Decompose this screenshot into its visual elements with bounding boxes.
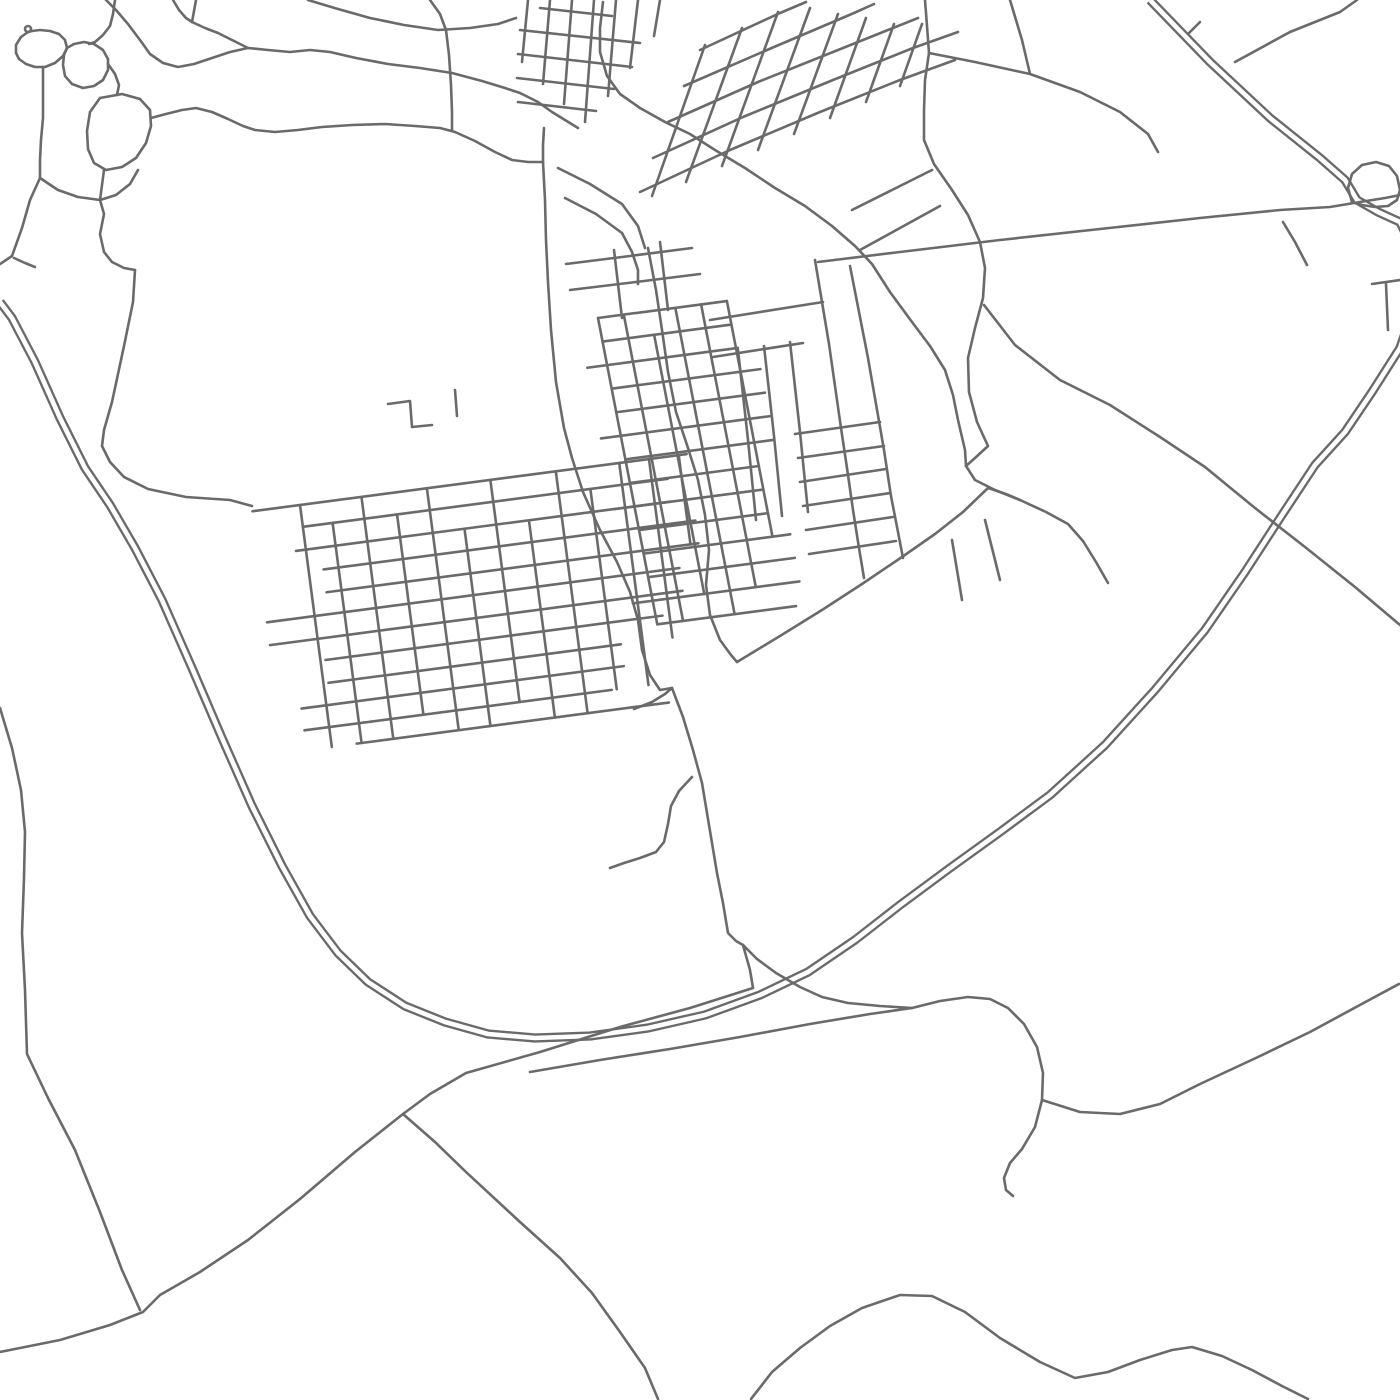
center-grid-row-0 bbox=[598, 301, 727, 318]
big-west-grid-col-3 bbox=[397, 514, 423, 714]
ladder-rung-5 bbox=[518, 102, 596, 111]
ribbon-street-1 bbox=[558, 168, 645, 248]
interchange-teardrop bbox=[912, 997, 1043, 1196]
center-grid-col-5 bbox=[727, 301, 773, 537]
west-east-wavy-road bbox=[106, 0, 578, 128]
c-stub-2 bbox=[985, 520, 1000, 580]
center-grid-row-12 bbox=[633, 581, 800, 603]
center-grid-row-13 bbox=[657, 606, 796, 624]
right-edge-stub-2 bbox=[1386, 284, 1388, 330]
center-grid-row-1 bbox=[603, 325, 732, 342]
left-rural-road bbox=[0, 708, 140, 1310]
loop2-loop3-link bbox=[108, 64, 119, 95]
v-fork-stem bbox=[192, 22, 248, 48]
big-west-grid-col-2 bbox=[361, 497, 393, 739]
ne-collector bbox=[929, 53, 1158, 152]
mid-row-2 bbox=[570, 274, 700, 290]
v-fork-east bbox=[192, 0, 196, 22]
big-west-grid-col-7 bbox=[529, 520, 555, 717]
c-avenue-2 bbox=[850, 266, 903, 558]
cluster-sw-stub bbox=[14, 258, 35, 267]
ladder-rung-3 bbox=[518, 54, 632, 67]
big-west-grid-row-9 bbox=[302, 666, 624, 708]
cul-de-sac-knob bbox=[25, 26, 31, 32]
big-west-grid-col-5 bbox=[464, 529, 490, 726]
street-grid-layer bbox=[252, 301, 799, 747]
ladder-rail-3 bbox=[564, 0, 572, 104]
ne-collector-north bbox=[925, 0, 929, 53]
c-rung-5 bbox=[806, 517, 893, 530]
map-canvas bbox=[0, 0, 1400, 1400]
big-west-grid-col-0 bbox=[300, 505, 332, 747]
ladder-rail-7 bbox=[654, 0, 660, 36]
north-vertical-road bbox=[430, 0, 452, 130]
v-junction-southeast bbox=[403, 1114, 658, 1399]
nw-top-road bbox=[308, 0, 516, 30]
ne-grid-se-row-2 bbox=[860, 206, 940, 250]
mid-row-1 bbox=[566, 248, 692, 264]
east-wiggle-road bbox=[924, 53, 1108, 583]
highway-core-layer bbox=[0, 0, 1400, 1038]
loop3-inner-lane bbox=[100, 170, 138, 200]
hook-lane bbox=[610, 777, 692, 868]
ne-grid-cross-7 bbox=[866, 24, 894, 102]
c-avenue-1 bbox=[815, 260, 864, 578]
east-valley-road bbox=[1042, 984, 1399, 1114]
highway-casing-layer bbox=[0, 0, 1400, 1038]
divided-highway-casing bbox=[0, 0, 1400, 1038]
big-west-grid-row-1 bbox=[303, 479, 668, 527]
long-road-stub bbox=[1283, 222, 1307, 265]
ne-collector-branch bbox=[1010, 0, 1030, 74]
long-straight-road bbox=[818, 195, 1400, 262]
c-rung-1 bbox=[795, 422, 880, 434]
c-rung-4 bbox=[803, 493, 890, 506]
big-west-grid-row-8 bbox=[328, 644, 620, 682]
cul-de-sac-loop-1 bbox=[19, 30, 67, 67]
c-stub-1 bbox=[952, 540, 962, 600]
cul-de-sac-knob-layer bbox=[25, 26, 31, 32]
divided-highway-core bbox=[0, 0, 1400, 1038]
knob-west-edge bbox=[16, 32, 28, 59]
big-west-grid-col-8 bbox=[556, 471, 588, 713]
ladder-rung-2 bbox=[520, 30, 640, 43]
c-rung-3 bbox=[800, 469, 886, 482]
highway-merge-diagonal bbox=[1235, 0, 1357, 62]
cul-de-sac-loop-2 bbox=[63, 42, 108, 88]
cluster-to-grid-road bbox=[102, 270, 252, 506]
mid-avenue-top-link bbox=[543, 128, 544, 162]
center-grid-row-5 bbox=[601, 416, 770, 438]
c-vert-3 bbox=[790, 342, 808, 512]
v-fork-west bbox=[173, 0, 192, 22]
street-map bbox=[0, 0, 1400, 1400]
big-west-grid-row-11 bbox=[357, 703, 669, 744]
ne-grid-se-row-1 bbox=[852, 170, 932, 210]
v-junction-southwest bbox=[0, 1114, 403, 1352]
se-diagonal bbox=[984, 305, 1400, 625]
c-rung-6 bbox=[809, 541, 896, 554]
south-road bbox=[672, 688, 743, 945]
big-west-grid-col-4 bbox=[427, 488, 459, 730]
loop3-south-link bbox=[100, 170, 104, 200]
highway-cross-tick bbox=[1188, 22, 1200, 34]
c-vert-2 bbox=[764, 346, 782, 516]
cluster-west-leg bbox=[40, 67, 43, 178]
cluster-east-road bbox=[151, 108, 543, 162]
ladder-rail-6 bbox=[630, 0, 638, 68]
town-se-boundary bbox=[737, 488, 1020, 662]
ladder-rail-2 bbox=[543, 0, 550, 84]
cluster-sw-diagonal bbox=[0, 178, 40, 264]
c-rung-2 bbox=[798, 446, 884, 458]
grid-a-north-stub-1 bbox=[388, 401, 432, 427]
ne-grid-street-3 bbox=[668, 18, 918, 122]
big-west-grid-col-6 bbox=[490, 480, 519, 702]
cul-de-sac-loop-3 bbox=[87, 94, 151, 170]
bottom-wavy-road bbox=[751, 1295, 1308, 1399]
ne-grid-street-5 bbox=[700, 2, 806, 50]
grid-a-north-stub-2 bbox=[455, 390, 457, 416]
